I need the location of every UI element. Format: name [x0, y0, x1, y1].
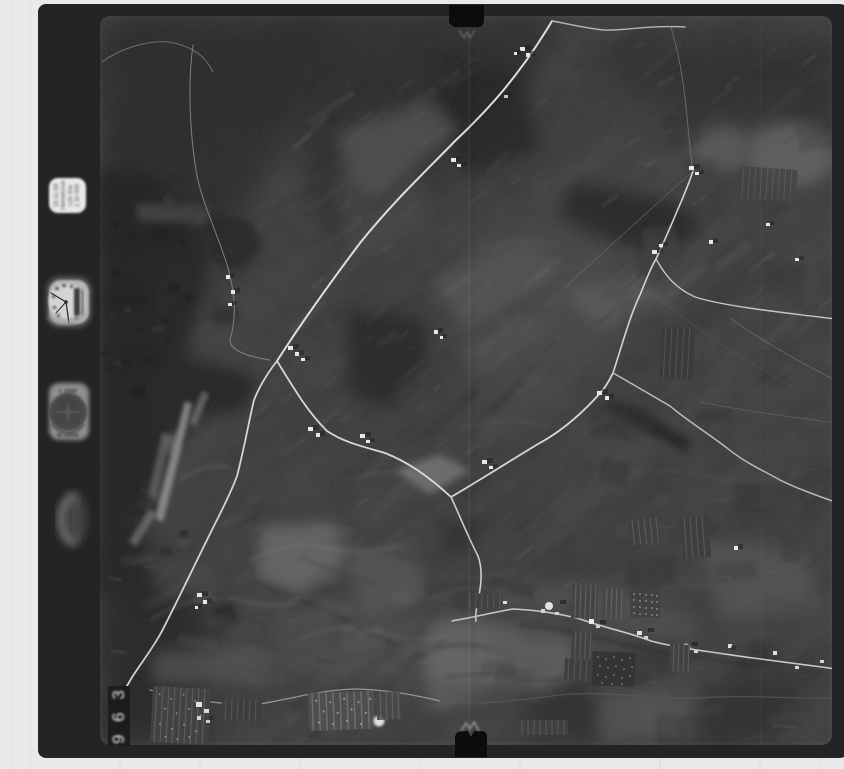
svg-text:TARNAVIVA: TARNAVIVA — [61, 180, 67, 210]
svg-text:1:10 000: 1:10 000 — [75, 183, 81, 207]
svg-text:LQ5 30w: LQ5 30w — [68, 184, 74, 206]
svg-text:L 2330: L 2330 — [59, 389, 76, 395]
svg-text:M 10000: M 10000 — [57, 433, 78, 439]
svg-text:15-11-58: 15-11-58 — [54, 183, 60, 207]
svg-text:9 6 3: 9 6 3 — [109, 686, 128, 744]
